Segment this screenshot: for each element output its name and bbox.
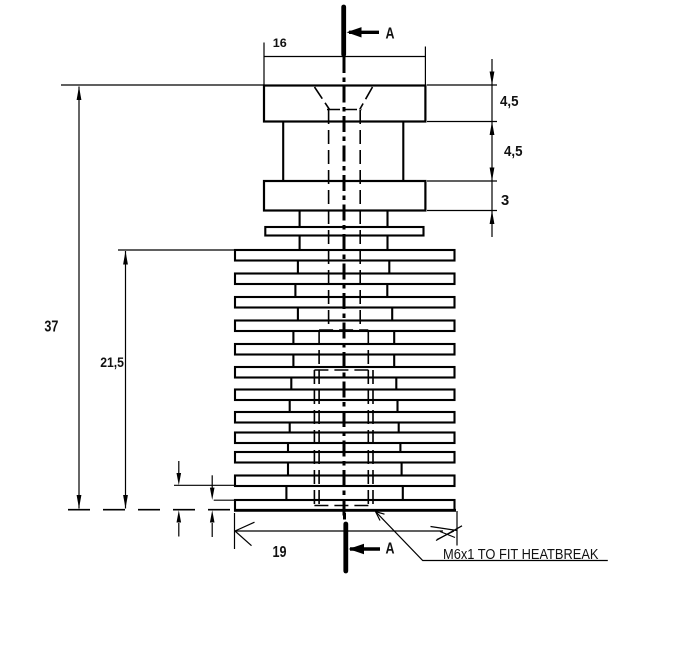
svg-text:21,5: 21,5 [100,355,124,370]
svg-text:4,5: 4,5 [504,144,523,160]
svg-text:19: 19 [273,544,287,561]
svg-text:37: 37 [44,319,58,336]
svg-text:3: 3 [501,193,509,209]
svg-text:M6x1 TO FIT HEATBREAK: M6x1 TO FIT HEATBREAK [443,547,599,563]
svg-text:A: A [386,26,395,43]
svg-text:A: A [386,540,395,557]
svg-text:16: 16 [273,37,288,50]
svg-text:4,5: 4,5 [500,94,519,110]
